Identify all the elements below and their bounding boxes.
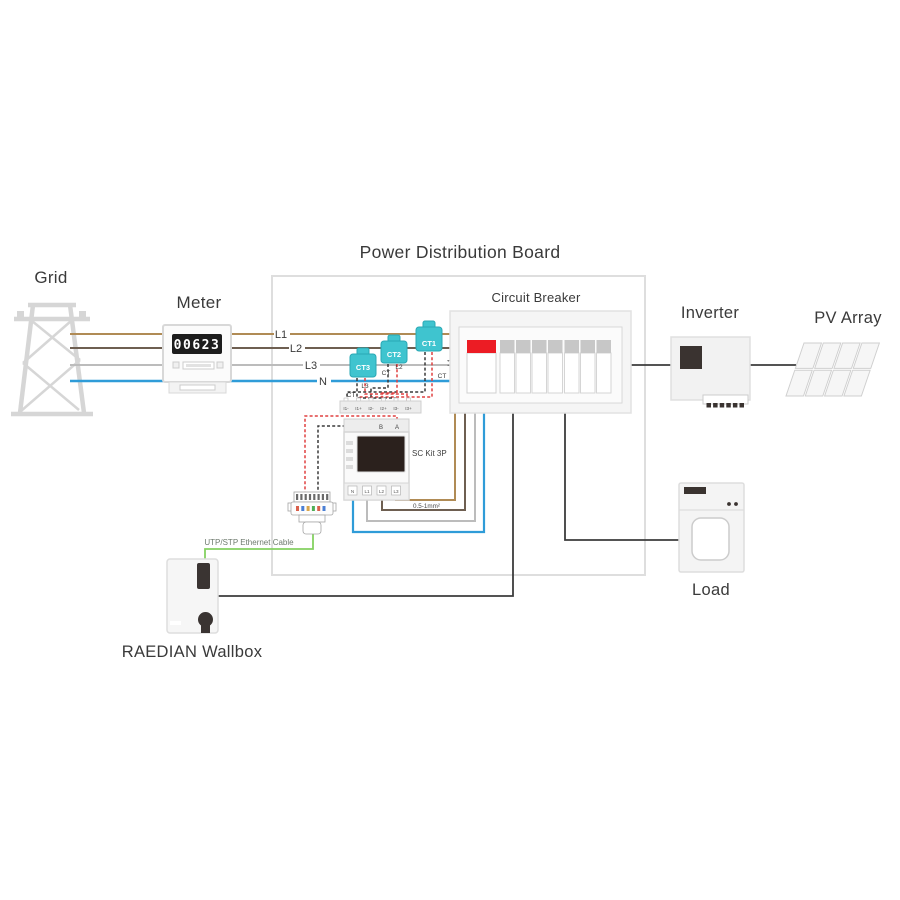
l3-label: L3 [305, 360, 317, 372]
diagram-svg: L1 L2 L3 N 00623 UTP/STP Ethernet Cable [0, 0, 900, 900]
terminal-i3plus: I3+ [405, 406, 412, 411]
terminal-l1: L1 [364, 489, 370, 494]
ct2-ct-tag: CT [382, 370, 391, 377]
ct3-line-tag: L3 [361, 383, 369, 390]
wire-gauge-label: 0.5-1mm² [413, 503, 440, 510]
pv-array-label: PV Array [814, 309, 882, 327]
breaker-modules [500, 340, 611, 393]
terminal-l2: L2 [379, 489, 385, 494]
terminal-a: A [395, 425, 399, 431]
breaker-red-switch [467, 340, 496, 353]
ethernet-cable-label: UTP/STP Ethernet Cable [204, 538, 294, 547]
l2-label: L2 [290, 343, 302, 355]
terminal-i1plus: I1+ [355, 406, 362, 411]
load-icon [679, 483, 744, 572]
ct1-ct-tag: CT [438, 373, 447, 380]
terminal-i1minus: I1- [343, 406, 349, 411]
inverter-icon [671, 337, 750, 408]
terminal-n: N [351, 489, 354, 494]
wallbox-label: RAEDIAN Wallbox [122, 643, 263, 661]
terminal-b: B [379, 425, 383, 431]
breaker-module-main [467, 340, 496, 393]
ct2-clamp: CT2 [381, 335, 407, 363]
ct1-clamp: CT1 [416, 321, 442, 351]
pdb-title: Power Distribution Board [360, 242, 561, 262]
meter-label: Meter [177, 293, 222, 312]
n-label: N [319, 376, 327, 388]
meter-reading: 00623 [174, 338, 221, 353]
ct2-name: CT2 [387, 350, 401, 359]
terminal-i3minus: I3- [393, 406, 399, 411]
wiring-diagram: L1 L2 L3 N 00623 UTP/STP Ethernet Cable [0, 0, 900, 900]
sckit-device: N L1 L2 L3 [344, 432, 409, 500]
wallbox-socket [197, 563, 210, 589]
ct3-name: CT3 [356, 363, 370, 372]
sckit-comm-row: B A [344, 419, 409, 432]
terminal-i2plus: I2+ [380, 406, 387, 411]
ct1-name: CT1 [422, 339, 436, 348]
rj45-connector-icon [288, 492, 336, 534]
load-label: Load [692, 581, 730, 599]
ct2-line-tag: L2 [395, 364, 403, 371]
wallbox-icon [167, 559, 218, 633]
grid-tower-icon [11, 305, 93, 414]
sckit-ct-terminal-strip: I1- I1+ I2- I2+ I3- I3+ [340, 398, 421, 413]
load-door [692, 518, 729, 560]
l1-label: L1 [275, 329, 287, 341]
circuit-breaker-icon [450, 311, 631, 413]
inverter-label: Inverter [681, 304, 740, 322]
grid-label: Grid [34, 268, 67, 287]
pv-array-icon [786, 343, 879, 396]
breaker-to-load-wire [565, 413, 679, 540]
meter-icon: 00623 [163, 325, 231, 393]
terminal-l3: L3 [393, 489, 399, 494]
terminal-i2minus: I2- [368, 406, 374, 411]
circuit-breaker-label: Circuit Breaker [492, 290, 581, 305]
ct3-clamp: CT3 [350, 348, 376, 377]
sckit-screen [357, 436, 405, 472]
sckit-label: SC Kit 3P [412, 449, 447, 458]
